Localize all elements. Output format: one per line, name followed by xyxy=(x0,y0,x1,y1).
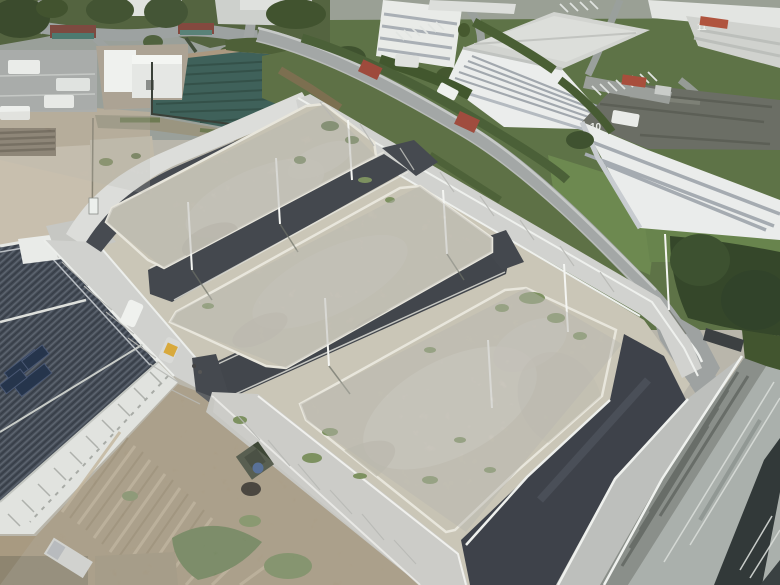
svg-text:10: 10 xyxy=(590,122,602,133)
